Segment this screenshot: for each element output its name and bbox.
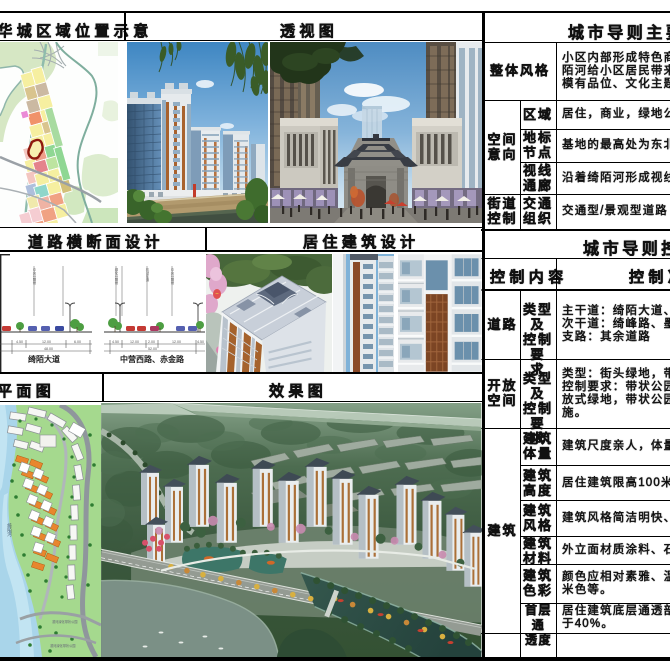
svg-text:48.00: 48.00 bbox=[44, 347, 53, 351]
svg-text:2.00: 2.00 bbox=[148, 340, 155, 344]
svg-text:滨河绿化带状公园: 滨河绿化带状公园 bbox=[52, 619, 78, 624]
svg-text:12.00: 12.00 bbox=[42, 340, 51, 344]
svg-text:绿化分隔带: 绿化分隔带 bbox=[114, 266, 118, 285]
svg-text:绮陌河: 绮陌河 bbox=[7, 521, 13, 536]
svg-text:滨河绿化带状公园: 滨河绿化带状公园 bbox=[50, 643, 76, 648]
svg-text:6.00: 6.00 bbox=[74, 340, 81, 344]
svg-text:4.50: 4.50 bbox=[197, 340, 204, 344]
svg-text:机动车道: 机动车道 bbox=[145, 266, 149, 281]
svg-text:4.50: 4.50 bbox=[112, 340, 119, 344]
svg-text:绮陌大道: 绮陌大道 bbox=[28, 354, 60, 364]
svg-text:中央分隔带: 中央分隔带 bbox=[32, 266, 36, 285]
svg-text:中央分隔带: 中央分隔带 bbox=[170, 266, 174, 285]
svg-text:52.00: 52.00 bbox=[148, 347, 157, 351]
svg-text:4.50: 4.50 bbox=[16, 340, 23, 344]
svg-text:12.00: 12.00 bbox=[172, 340, 181, 344]
svg-text:中营西路、赤金路: 中营西路、赤金路 bbox=[120, 354, 185, 364]
svg-text:12.00: 12.00 bbox=[130, 340, 139, 344]
